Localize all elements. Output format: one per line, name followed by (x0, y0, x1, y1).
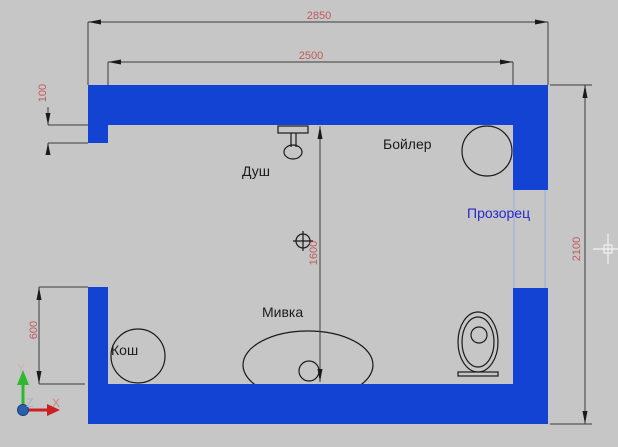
dim-2500-arrow-right (500, 60, 513, 65)
boiler-label[interactable]: Бойлер (383, 137, 432, 151)
toilet-inner-ellipse[interactable] (462, 317, 494, 367)
dim-2100-arrow-bottom (583, 411, 588, 424)
dim-100-arrow-bottom (46, 143, 51, 155)
dim-outer-width-text[interactable]: 2850 (289, 10, 349, 22)
x-axis-label: X (52, 396, 60, 410)
cad-drawing-area[interactable]: 2850 2500 2100 1600 600 100 Душ Бойлер М… (0, 0, 618, 447)
wall-right-upper[interactable] (513, 125, 548, 190)
y-axis-label: Y (17, 361, 25, 375)
toilet-symbol[interactable] (458, 312, 498, 376)
dim-1600-arrow-top (318, 126, 323, 139)
shower-arm-bar[interactable] (278, 126, 308, 133)
sink-drain-circle[interactable] (299, 361, 319, 381)
dim-inner-height-text[interactable]: 1600 (308, 223, 320, 283)
boiler-circle[interactable] (462, 126, 512, 176)
shower-head-ellipse[interactable] (284, 145, 302, 159)
basket-label[interactable]: Кош (111, 343, 138, 357)
window-label[interactable]: Прозорец (467, 206, 530, 220)
wall-bottom[interactable] (88, 384, 548, 424)
dim-2850-arrow-left (88, 20, 101, 25)
dim-2500-arrow-left (108, 60, 121, 65)
dim-wall-segment-text[interactable]: 600 (28, 300, 40, 360)
z-axis-label: Z (26, 396, 33, 410)
toilet-outer-ellipse[interactable] (458, 312, 498, 372)
crosshair-cursor (593, 234, 618, 264)
dim-outer-height-text[interactable]: 2100 (571, 219, 583, 279)
dim-wall-step-text[interactable]: 100 (37, 63, 49, 123)
dim-inner-width-text[interactable]: 2500 (281, 50, 341, 62)
dimension-arrows (37, 20, 588, 425)
shower-label[interactable]: Душ (242, 164, 270, 178)
wall-right-lower[interactable] (513, 288, 548, 384)
dim-600-arrow-top (37, 287, 42, 300)
wall-left-step[interactable] (88, 125, 108, 143)
dim-2850-arrow-right (535, 20, 548, 25)
sink-label[interactable]: Мивка (262, 305, 303, 319)
dim-600-arrow-bottom (37, 371, 42, 384)
wall-top[interactable] (88, 85, 548, 125)
dim-2100-arrow-top (583, 85, 588, 98)
toilet-flush-circle[interactable] (471, 327, 487, 343)
